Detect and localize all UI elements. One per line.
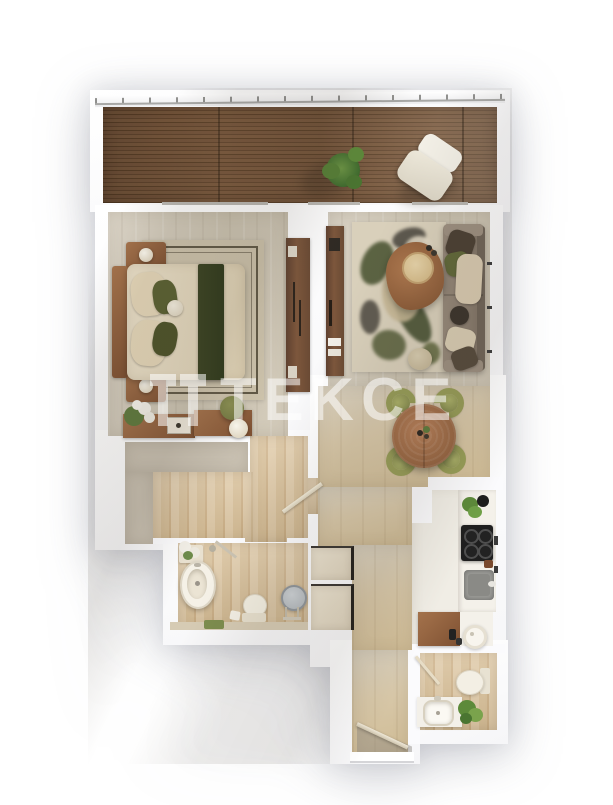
wall-outlet: [494, 566, 498, 573]
bed-runner-green: [198, 264, 224, 380]
plant-foliage: [460, 713, 472, 724]
table-lamp-top: [139, 248, 153, 262]
console-books: [328, 338, 341, 346]
counter-item-brown: [484, 560, 493, 568]
mirror-base: [283, 617, 301, 620]
wardrobe-handle: [293, 282, 295, 322]
flower-blossom: [144, 412, 155, 423]
burner: [464, 529, 479, 544]
guest-bath-plant: [456, 698, 484, 726]
decor-item: [417, 430, 423, 436]
sink-drain: [436, 711, 440, 715]
tub-drain: [195, 581, 200, 586]
sink-basin: [468, 574, 490, 596]
deck-joint: [218, 107, 220, 203]
shower-head: [209, 545, 216, 552]
hall-door-gap: [308, 478, 318, 514]
dining-table: [392, 404, 456, 468]
hall-floor: [153, 472, 253, 542]
wall-outlet: [487, 262, 492, 265]
floor-cushion: [408, 348, 432, 370]
rug-pattern: [360, 300, 380, 334]
corridor-floor-upper: [318, 487, 412, 547]
decor-dot: [176, 423, 181, 428]
burner: [464, 544, 479, 559]
console-books: [328, 349, 341, 356]
toilet-tank: [242, 613, 266, 622]
console-decor-dark: [329, 238, 340, 251]
balcony-plant: [322, 145, 366, 193]
bath-towel: [229, 610, 240, 621]
hall-floor-connector: [250, 436, 308, 542]
sofa-lounge-cushion: [455, 253, 484, 304]
wall-outlet: [487, 306, 492, 309]
guest-sink-faucet: [434, 696, 441, 701]
bath-south-ledge: [170, 622, 308, 630]
floor-plan-scene: TEKCE: [0, 0, 613, 805]
rug-pattern: [370, 327, 409, 362]
apartment-plan: [0, 0, 613, 805]
bed-headboard: [112, 266, 128, 378]
storage-cabinet-lower: [311, 584, 354, 630]
wardrobe-handle: [299, 300, 301, 336]
balcony-door-threshold: [162, 202, 268, 205]
bedroom-pouf: [220, 396, 244, 420]
void-area-top: [125, 442, 248, 472]
wardrobe-decor: [288, 366, 297, 378]
plant-pot: [477, 495, 489, 507]
table-lamp-bottom: [139, 379, 153, 393]
counter-jar: [456, 638, 462, 645]
knit-ball-pillow: [167, 300, 183, 316]
kitchen-plant: [462, 493, 490, 520]
toilet-main: [242, 594, 266, 622]
bath-mat: [204, 620, 224, 629]
plant-foliage: [348, 147, 364, 162]
bedroom-wardrobe: [286, 238, 310, 392]
balcony-door-threshold: [412, 202, 468, 205]
storage-cabinet-upper: [311, 546, 354, 580]
burner: [478, 544, 493, 559]
toilet-guest-bowl: [456, 670, 484, 695]
flower-vase: [124, 398, 158, 432]
counter-jar: [449, 629, 456, 640]
flower-blossom: [132, 400, 142, 410]
table-centerpiece: [415, 426, 433, 442]
wall-outlet: [487, 350, 492, 353]
corridor-floor-mid: [352, 545, 412, 652]
kitchen-west-stub-wall: [412, 487, 432, 523]
decor-sprig: [423, 426, 430, 433]
bathtub: [180, 561, 216, 609]
console-handle: [329, 300, 332, 326]
tv-console: [326, 226, 344, 376]
roll-hole: [470, 632, 474, 636]
guest-sink: [423, 700, 454, 726]
flower-foliage: [183, 551, 193, 560]
plant-foliage: [346, 175, 362, 189]
sofa-round-pillow: [450, 306, 469, 325]
decor-item: [431, 250, 437, 256]
burner: [478, 529, 493, 544]
sphere-lamp: [229, 419, 248, 438]
balcony-door-threshold: [308, 202, 360, 205]
wardrobe-decor: [288, 246, 297, 257]
coffee-table-decor: [426, 243, 438, 257]
kitchen-north-wall: [428, 477, 503, 490]
paper-roll: [463, 625, 487, 649]
decor-item: [424, 434, 429, 439]
bath-flowers: [177, 539, 203, 561]
wall-outlet: [494, 536, 498, 545]
sink-faucet: [488, 581, 496, 587]
cooktop: [461, 525, 493, 561]
sideboard-decor-frame: [167, 417, 191, 434]
kitchen-sink: [464, 570, 494, 600]
plant-foliage: [468, 506, 482, 518]
tub-faucet: [194, 563, 201, 567]
void-area-left: [125, 472, 153, 544]
entry-threshold: [350, 752, 414, 763]
plant-foliage: [322, 163, 340, 179]
